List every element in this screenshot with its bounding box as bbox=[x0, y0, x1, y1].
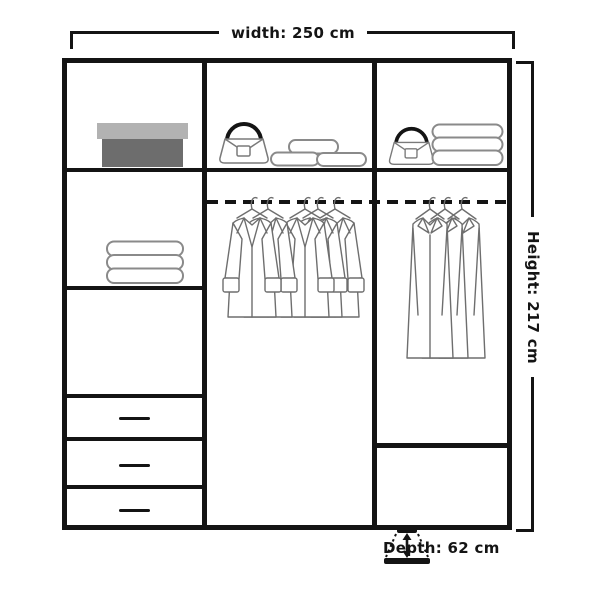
middle-hanging-coats bbox=[207, 195, 372, 327]
storage-box-icon bbox=[102, 139, 183, 167]
depth-arrow-icon bbox=[383, 525, 433, 571]
handbag-middle-icon bbox=[217, 110, 271, 166]
storage-box-lid bbox=[97, 123, 188, 139]
handbag-right-icon bbox=[387, 116, 436, 167]
depth-annotation: Depth: 62 cm bbox=[383, 539, 500, 557]
cushion-stack-icon bbox=[270, 139, 367, 167]
drawer-handle-3[interactable] bbox=[119, 509, 150, 512]
drawer-divider-1 bbox=[67, 437, 202, 441]
width-label: width: 250 cm bbox=[72, 23, 514, 42]
shelf-middle-top bbox=[207, 168, 372, 172]
shelf-left-1 bbox=[67, 168, 202, 172]
shelf-left-2 bbox=[67, 286, 202, 290]
drawer-handle-2[interactable] bbox=[119, 464, 150, 467]
shelf-right-bottom bbox=[377, 443, 507, 448]
wardrobe-frame bbox=[62, 58, 512, 530]
shelf-left-3 bbox=[67, 394, 202, 398]
wardrobe-dimension-diagram: width: 250 cm Height: 217 cm bbox=[0, 0, 600, 600]
width-label-text: width: 250 cm bbox=[219, 24, 367, 42]
drawer-divider-2 bbox=[67, 485, 202, 489]
towel-stack-left-icon bbox=[105, 240, 185, 285]
drawer-handle-1[interactable] bbox=[119, 417, 150, 420]
height-label: Height: 217 cm bbox=[521, 62, 545, 532]
coat-on-hanger-icon bbox=[223, 198, 281, 317]
right-hanging-coats bbox=[377, 195, 507, 363]
height-label-text: Height: 217 cm bbox=[522, 217, 544, 378]
towel-stack-right-icon bbox=[431, 123, 504, 167]
shelf-right-top bbox=[377, 168, 507, 172]
